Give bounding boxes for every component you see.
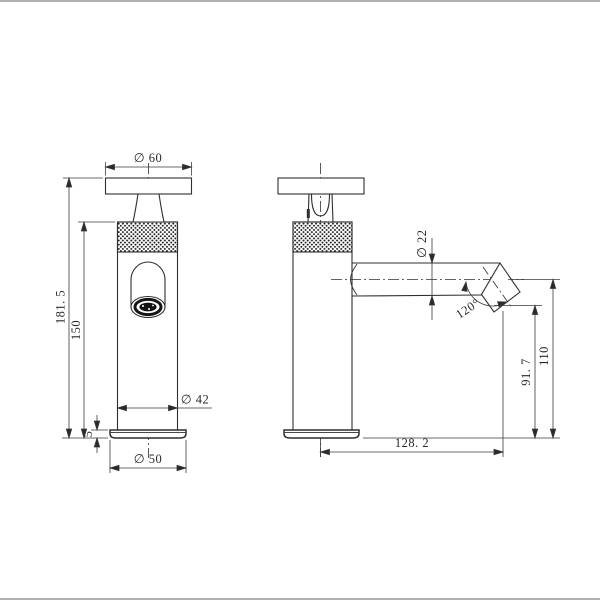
- handle-flange-side: [278, 178, 364, 194]
- dim-label-outlet-height: 91. 7: [519, 358, 533, 386]
- dim-outlet-height: 91. 7: [494, 306, 542, 439]
- front-view: [106, 163, 192, 458]
- dim-label-spout-tube-diameter: ∅ 22: [415, 229, 429, 258]
- dim-overall-height: 181. 5: [54, 178, 104, 438]
- drawing-sheet: ∅ 60 181. 5 150: [0, 0, 600, 600]
- knurled-ring-side: [293, 222, 352, 252]
- handle-flange-front: [106, 178, 192, 194]
- technical-drawing-canvas: ∅ 60 181. 5 150: [0, 0, 600, 600]
- side-view: [278, 163, 524, 457]
- dim-label-base-thickness: 5: [81, 431, 95, 438]
- base-flange-side: [284, 430, 359, 438]
- knurled-ring-front: [118, 222, 178, 252]
- dim-label-outlet-angle: 120°: [453, 296, 482, 322]
- dim-label-body-height: 150: [69, 320, 83, 340]
- dim-spout-tube-diameter: ∅ 22: [415, 229, 435, 320]
- dim-label-body-diameter: ∅ 42: [181, 393, 210, 407]
- handle-stem-front: [133, 194, 164, 222]
- dim-base-thickness: 5: [81, 415, 108, 453]
- dim-label-spout-reach: 128. 2: [395, 436, 429, 450]
- faucet-body-side: [293, 222, 352, 438]
- base-flange-front: [110, 430, 186, 438]
- dim-label-base-diameter: ∅ 50: [134, 452, 163, 466]
- side-view-dimensions: ∅ 22 120° 91. 7: [321, 229, 561, 457]
- dim-label-overall-height: 181. 5: [54, 290, 68, 324]
- dim-label-spout-axis-height: 110: [537, 346, 551, 366]
- aerator: [131, 297, 165, 318]
- dim-base-diameter: ∅ 50: [110, 440, 186, 473]
- dim-label-handle-diameter: ∅ 60: [134, 151, 163, 165]
- dim-body-height: 150: [62, 222, 115, 438]
